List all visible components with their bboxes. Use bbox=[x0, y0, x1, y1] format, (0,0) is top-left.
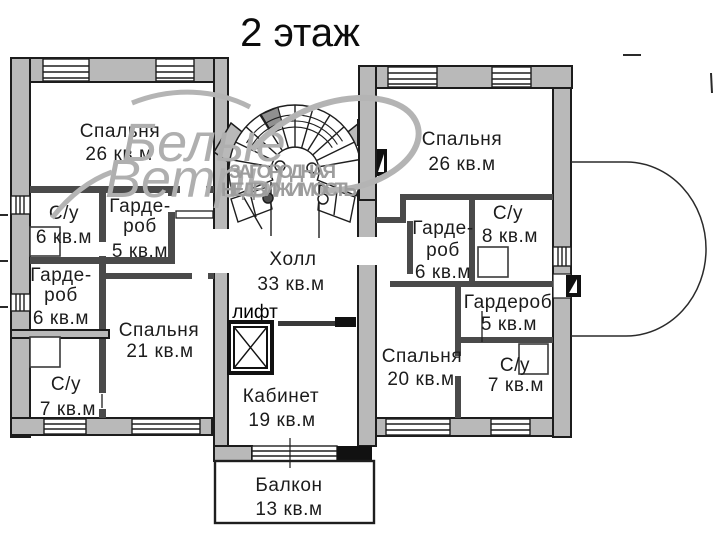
svg-text:7 кв.м: 7 кв.м bbox=[488, 375, 544, 396]
svg-text:С/у: С/у bbox=[51, 374, 81, 395]
svg-text:Спальня: Спальня bbox=[382, 346, 463, 367]
svg-text:8 кв.м: 8 кв.м bbox=[482, 226, 538, 247]
svg-text:роб: роб bbox=[426, 240, 460, 261]
svg-text:26 кв.м: 26 кв.м bbox=[428, 154, 495, 175]
svg-text:Спальня: Спальня bbox=[119, 320, 200, 341]
svg-text:5 кв.м: 5 кв.м bbox=[112, 241, 168, 262]
svg-text:роб: роб bbox=[44, 285, 78, 306]
svg-text:Кабинет: Кабинет bbox=[243, 386, 319, 407]
svg-text:С/у: С/у bbox=[493, 203, 523, 224]
svg-text:21 кв.м: 21 кв.м bbox=[126, 341, 193, 362]
svg-text:НЕДВИЖИМОСТЬ: НЕДВИЖИМОСТЬ bbox=[221, 180, 357, 201]
svg-text:Гарде-: Гарде- bbox=[30, 265, 92, 286]
svg-text:Спальня: Спальня bbox=[422, 129, 503, 150]
svg-text:6 кв.м: 6 кв.м bbox=[415, 262, 471, 283]
svg-text:5 кв.м: 5 кв.м bbox=[481, 314, 537, 335]
svg-text:19 кв.м: 19 кв.м bbox=[248, 410, 315, 431]
svg-text:Балкон: Балкон bbox=[255, 475, 322, 496]
svg-text:Холл: Холл bbox=[269, 249, 316, 270]
svg-text:6 кв.м: 6 кв.м bbox=[36, 227, 92, 248]
svg-text:лифт: лифт bbox=[232, 302, 278, 323]
svg-text:Гарде-: Гарде- bbox=[412, 218, 474, 239]
svg-text:20 кв.м: 20 кв.м bbox=[387, 369, 454, 390]
svg-text:С/у: С/у bbox=[500, 355, 530, 376]
svg-text:Гардероб: Гардероб bbox=[464, 292, 552, 313]
svg-text:33 кв.м: 33 кв.м bbox=[257, 274, 324, 295]
svg-text:13 кв.м: 13 кв.м bbox=[255, 499, 322, 520]
svg-text:6 кв.м: 6 кв.м bbox=[33, 308, 89, 329]
svg-text:7 кв.м: 7 кв.м bbox=[40, 399, 96, 420]
svg-text:2 этаж: 2 этаж bbox=[240, 11, 360, 55]
svg-text:роб: роб bbox=[123, 216, 157, 237]
